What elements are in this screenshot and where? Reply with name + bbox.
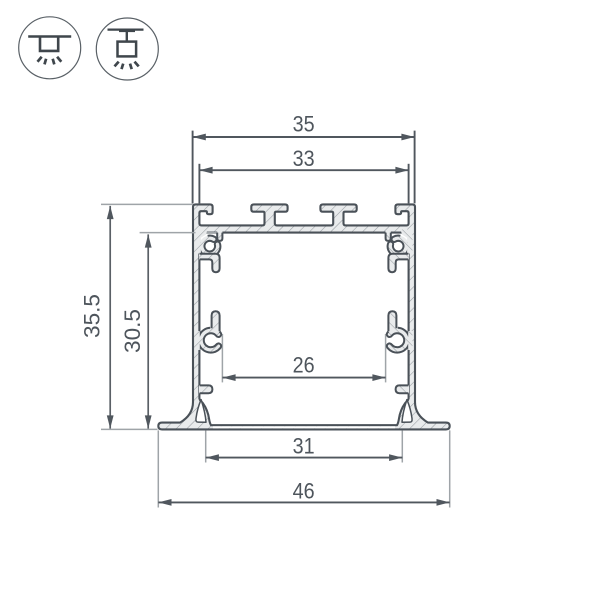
svg-text:46: 46 bbox=[293, 478, 315, 503]
svg-text:31: 31 bbox=[293, 434, 315, 459]
svg-text:35.5: 35.5 bbox=[80, 294, 105, 338]
svg-text:35: 35 bbox=[293, 112, 315, 137]
svg-text:30.5: 30.5 bbox=[120, 309, 145, 353]
svg-text:26: 26 bbox=[293, 353, 315, 378]
svg-text:33: 33 bbox=[293, 146, 315, 171]
